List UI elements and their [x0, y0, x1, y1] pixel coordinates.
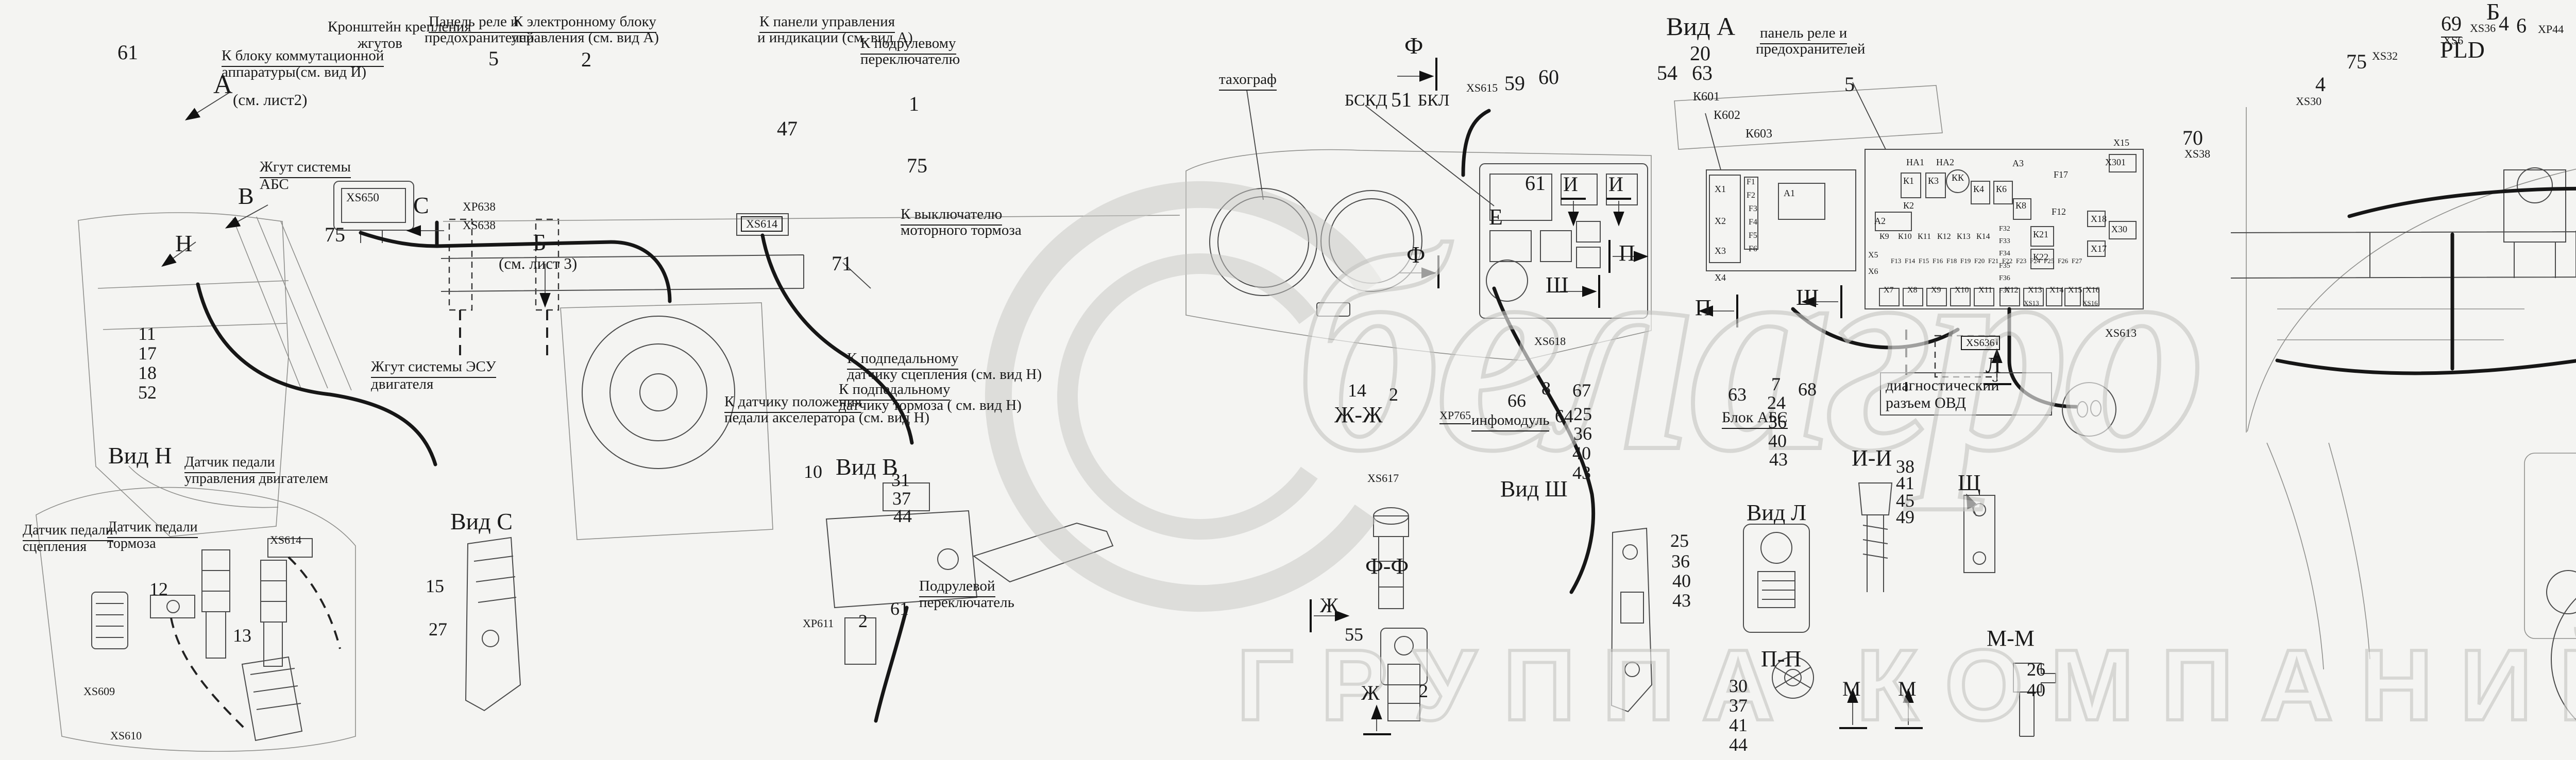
callout-label: А3	[2012, 159, 2024, 168]
callout-label: В	[238, 184, 254, 209]
callout-label: 14	[1348, 381, 1366, 400]
callout-label: 54	[1657, 63, 1677, 84]
callout-label: 60	[1538, 67, 1559, 88]
callout-label: F23	[2016, 257, 2026, 264]
callout-label: Вид Ш	[1500, 478, 1568, 501]
callout-label: К602	[1714, 109, 1740, 122]
callout-label: 10	[804, 462, 822, 481]
callout-label: двигателя	[371, 377, 433, 392]
callout-label: F4	[1749, 218, 1757, 227]
callout-label: X1	[1715, 184, 1726, 194]
callout-label: К603	[1745, 128, 1772, 140]
callout-label: HA2	[1936, 158, 1954, 167]
callout-label: XS16	[2082, 300, 2098, 306]
callout-label: 64	[1555, 407, 1573, 426]
callout-label: ХР611	[803, 618, 834, 629]
callout-label: переключатель	[919, 595, 1014, 611]
callout-label: К2	[1903, 201, 1914, 210]
callout-label: К11	[1918, 233, 1931, 241]
view-c-part	[466, 538, 520, 711]
callout-label: XS618	[1534, 336, 1566, 347]
callout-label: X15	[2113, 138, 2129, 147]
callout-label: А1	[1784, 188, 1795, 198]
callout-label: 40	[1768, 431, 1787, 451]
chassis-right	[2231, 40, 2576, 746]
callout-label: 61	[117, 42, 138, 63]
callout-label: К1	[1903, 176, 1914, 185]
callout-label: (см. лист 3)	[499, 255, 577, 272]
callout-label: XS13	[2024, 300, 2039, 306]
callout-label: F1	[1747, 178, 1755, 186]
callout-label: 43	[1572, 463, 1591, 482]
callout-label: Б	[2486, 0, 2500, 24]
callout-label: 25	[1573, 405, 1592, 424]
callout-label: 6	[2516, 15, 2527, 37]
callout-label: 47	[777, 118, 798, 140]
drawing-sheet: белагро ГРУППА КОМПАНИЙ 61К блоку коммут…	[0, 0, 2576, 760]
callout-label: X6	[1868, 268, 1878, 276]
callout-label: 43	[1672, 591, 1691, 610]
callout-label: А	[213, 71, 233, 98]
callout-label: П-П	[1761, 648, 1801, 671]
callout-label: XS32	[2372, 50, 2398, 62]
callout-label: Вид А	[1666, 13, 1735, 40]
callout-label: Вид С	[450, 510, 513, 534]
callout-label: АБС	[260, 177, 289, 193]
callout-label: F24	[2030, 257, 2040, 264]
callout-label: 36	[1768, 412, 1787, 431]
callout-label: 30	[1729, 677, 1748, 696]
callout-label: БСКД	[1345, 92, 1387, 109]
callout-label: F13	[1891, 257, 1901, 264]
callout-label: F33	[1999, 238, 2010, 245]
callout-label: F21	[1988, 257, 1998, 264]
callout-label: 13	[233, 626, 251, 645]
callout-label: Б	[533, 231, 546, 255]
callout-label: Вид В	[836, 455, 898, 479]
callout-label: X30	[2111, 224, 2127, 234]
callout-label: К3	[1928, 176, 1939, 185]
callout-label: X11	[1978, 286, 1992, 295]
callout-label: И	[1608, 174, 1623, 195]
callout-label: Ж	[1320, 595, 1338, 616]
callout-label: 25	[1670, 531, 1689, 550]
callout-label: К21	[2033, 230, 2048, 239]
callout-label: Е	[1489, 206, 1503, 229]
callout-label: 63	[1692, 63, 1713, 84]
callout-label: М-М	[1987, 627, 2035, 650]
callout-label: управления (см. вид А)	[511, 30, 659, 46]
callout-label: F6	[1749, 245, 1757, 253]
callout-label: X14	[2049, 286, 2064, 295]
callout-label: X16	[2086, 286, 2100, 295]
callout-label: тахограф	[1219, 72, 1277, 91]
callout-label: К13	[1957, 233, 1971, 241]
callout-label: XP44	[2538, 24, 2564, 35]
callout-label: 11	[138, 324, 156, 343]
callout-label: А2	[1874, 216, 1886, 226]
callout-label: 67	[1572, 381, 1591, 400]
callout-label: Ж	[1361, 683, 1380, 704]
callout-label: К601	[1693, 91, 1720, 103]
callout-label: К8	[2015, 201, 2026, 210]
callout-label: 40	[1672, 572, 1691, 591]
callout-label: X13	[2028, 286, 2042, 295]
callout-label: Щ	[1958, 472, 1980, 495]
callout-label: XS609	[83, 686, 115, 697]
callout-label: F12	[2052, 207, 2066, 216]
switch-views	[1374, 508, 1652, 721]
callout-label: F22	[2002, 257, 2012, 264]
callout-label: 75	[907, 156, 927, 177]
callout-label: X3	[1715, 246, 1726, 255]
callout-label: F20	[1974, 257, 1985, 264]
callout-label: педали акселератора (см. вид Н)	[724, 410, 929, 426]
callout-label: X18	[2091, 214, 2107, 223]
callout-label: F5	[1749, 232, 1757, 240]
callout-label: X17	[2091, 244, 2107, 253]
callout-label: 7	[1771, 375, 1781, 394]
callout-label: инфомодуль	[1471, 413, 1549, 431]
callout-label: F32	[1999, 226, 2010, 233]
callout-label: F2	[1747, 192, 1755, 200]
callout-label: Ф-Ф	[1365, 555, 1409, 578]
callout-label: диагностический	[1886, 378, 1999, 394]
callout-label: жгутов	[358, 36, 402, 51]
callout-label: 36	[1671, 552, 1690, 571]
callout-label: М	[1842, 679, 1861, 700]
callout-label: Н	[175, 232, 192, 256]
callout-label: XS650	[346, 192, 379, 203]
callout-label: 4	[2315, 74, 2326, 95]
callout-label: 26	[2027, 660, 2045, 679]
callout-label: ХР638	[463, 201, 496, 213]
callout-label: XS613	[2105, 327, 2137, 339]
callout-label: моторного тормоза	[901, 223, 1022, 238]
callout-label: 43	[1769, 450, 1788, 469]
callout-label: XS614	[741, 216, 783, 232]
callout-label: 51	[1391, 90, 1412, 111]
callout-label: разъем ОВД	[1886, 395, 1966, 411]
callout-label: 41	[1729, 716, 1748, 735]
callout-label: Ш	[1796, 286, 1819, 309]
callout-label: 37	[1729, 696, 1748, 715]
callout-label: X10	[1955, 286, 1969, 295]
callout-label: 4	[2499, 13, 2509, 34]
callout-label: 40	[2027, 681, 2045, 700]
callout-label: 36	[1573, 424, 1592, 443]
callout-label: К6	[1996, 184, 2007, 194]
callout-label: Жгут системы ЭСУ	[371, 359, 496, 378]
callout-label: F15	[1919, 257, 1929, 264]
callout-label: П	[1619, 242, 1635, 265]
callout-label: И	[1563, 174, 1578, 195]
callout-label: К10	[1898, 233, 1912, 241]
callout-label: 2	[858, 612, 868, 631]
callout-label: F14	[1905, 257, 1915, 264]
callout-label: XS38	[2184, 148, 2210, 160]
callout-label: 1	[909, 94, 919, 115]
callout-label: Ж-Ж	[1334, 404, 1383, 427]
callout-label: 44	[893, 507, 912, 526]
callout-label: Л	[1986, 354, 2001, 377]
callout-label: 68	[1798, 380, 1817, 399]
callout-label: 55	[1345, 625, 1363, 644]
callout-label: КК	[1952, 173, 1964, 182]
callout-label: 66	[1507, 391, 1526, 410]
callout-label: И-И	[1852, 447, 1892, 470]
callout-label: Вид Н	[108, 444, 172, 468]
callout-label: 61	[1525, 173, 1546, 194]
callout-label: 2	[1419, 682, 1428, 701]
callout-label: X4	[1715, 273, 1726, 282]
callout-label: F36	[1999, 275, 2010, 282]
callout-label: F25	[2044, 257, 2054, 264]
callout-label: переключателю	[860, 52, 960, 67]
callout-label: 17	[138, 344, 157, 363]
callout-label: 24	[1767, 393, 1786, 412]
callout-label: XS636	[1961, 336, 2000, 350]
callout-label: XS614	[270, 534, 301, 546]
callout-label: М	[1898, 679, 1917, 700]
callout-label: XS615	[1466, 82, 1498, 94]
callout-label: сцепления	[23, 540, 87, 555]
callout-label: 27	[429, 620, 447, 639]
callout-label: F3	[1749, 205, 1757, 213]
callout-label: П	[1695, 297, 1711, 320]
callout-label: X7	[1884, 286, 1894, 295]
callout-label: 5	[488, 48, 499, 70]
callout-label: F19	[1960, 257, 1971, 264]
callout-label: Ф	[1406, 243, 1425, 267]
callout-label: управления двигателем	[184, 472, 328, 487]
callout-label: F26	[2058, 257, 2068, 264]
callout-label: аппаратуры(см. вид И)	[222, 65, 366, 80]
callout-label: XS30	[2296, 96, 2321, 107]
callout-label: 75	[325, 224, 345, 246]
callout-label: 49	[1896, 508, 1914, 527]
callout-label: X12	[2004, 286, 2019, 295]
callout-label: X9	[1931, 286, 1941, 295]
callout-label: X5	[1868, 251, 1878, 260]
callout-label: БКЛ	[1418, 92, 1449, 109]
callout-label: HA1	[1906, 158, 1924, 167]
callout-label: X2	[1715, 216, 1726, 226]
callout-label: XS617	[1367, 473, 1399, 484]
callout-label: Вид Л	[1747, 502, 1806, 525]
callout-label: 31	[891, 471, 910, 490]
callout-label: XS638	[463, 219, 496, 231]
callout-label: 63	[1728, 385, 1747, 404]
callout-label: 12	[149, 580, 168, 599]
callout-label: Ш	[1546, 274, 1568, 297]
callout-label: С	[413, 194, 429, 218]
callout-label: F27	[2072, 257, 2082, 264]
callout-label: F18	[1946, 257, 1957, 264]
callout-label: X301	[2105, 158, 2126, 167]
callout-label: датчику сцепления (см. вид Н)	[847, 367, 1042, 383]
callout-label: 61	[890, 599, 909, 618]
callout-label: (см. лист2)	[233, 92, 307, 108]
callout-label: К4	[1973, 184, 1984, 194]
callout-label: 40	[1572, 444, 1591, 463]
callout-label: 5	[1844, 74, 1855, 95]
callout-label: К14	[1976, 233, 1990, 241]
callout-label: 15	[426, 577, 444, 596]
callout-label: 71	[832, 253, 852, 274]
callout-label: 8	[1541, 379, 1551, 398]
callout-label: XS36	[2470, 23, 2496, 34]
callout-label: Ф	[1404, 34, 1423, 58]
callout-label: 2	[1389, 385, 1398, 404]
callout-label: предохранителей	[1756, 42, 1865, 57]
callout-label: К9	[1879, 233, 1889, 241]
callout-label: X8	[1907, 286, 1918, 295]
callout-label: X15	[2068, 286, 2082, 295]
callout-label: XS610	[110, 730, 142, 741]
callout-label: К12	[1937, 233, 1951, 241]
callout-label: Жгут системы	[260, 160, 351, 178]
callout-label: ХР765	[1439, 410, 1471, 424]
callout-label: F17	[2054, 170, 2068, 179]
callout-label: 18	[138, 364, 157, 383]
callout-label: 2	[581, 49, 591, 71]
callout-label: 59	[1504, 73, 1525, 94]
callout-label: 44	[1729, 735, 1748, 754]
callout-label: 75	[2346, 51, 2367, 73]
callout-label: F16	[1933, 257, 1943, 264]
callout-label: 70	[2182, 128, 2203, 149]
callout-label: XS6	[2443, 35, 2463, 46]
callout-label: 52	[138, 383, 157, 402]
callout-label: тормоза	[107, 537, 156, 551]
